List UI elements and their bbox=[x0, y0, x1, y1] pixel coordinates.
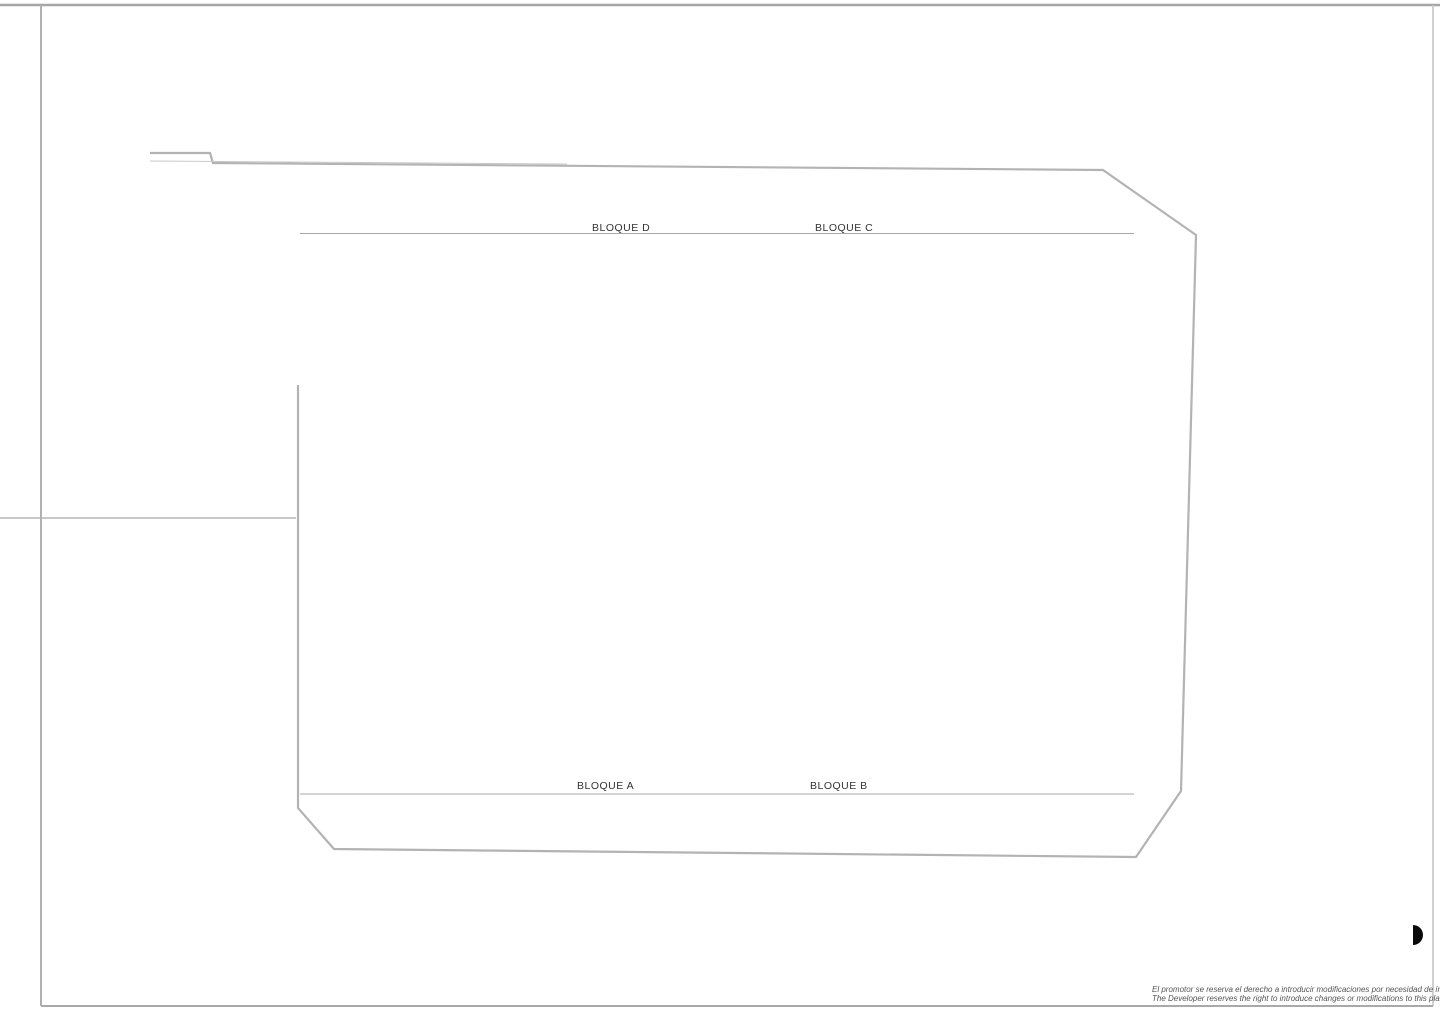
label-bloque-c: BLOQUE C bbox=[815, 222, 873, 234]
label-bloque-d: BLOQUE D bbox=[592, 222, 650, 234]
site-boundary-line bbox=[150, 153, 1196, 857]
label-bloque-a: BLOQUE A bbox=[577, 780, 634, 792]
sidewalk-lines bbox=[300, 234, 1134, 795]
disclaimer-text: El promotor se reserva el derecho a intr… bbox=[1152, 985, 1440, 1003]
label-bloque-b: BLOQUE B bbox=[810, 780, 868, 792]
binder-mark bbox=[1413, 925, 1423, 945]
block-labels: BLOQUE D BLOQUE C BLOQUE A BLOQUE B bbox=[577, 222, 873, 792]
site-plan-drawing: BLOQUE D BLOQUE C BLOQUE A BLOQUE B El p… bbox=[0, 0, 1440, 1024]
site-plan-sheet: BLOQUE D BLOQUE C BLOQUE A BLOQUE B El p… bbox=[0, 0, 1440, 1024]
disclaimer-line-en: The Developer reserves the right to intr… bbox=[1152, 994, 1440, 1003]
sheet-frame bbox=[0, 5, 1440, 1006]
site-boundary bbox=[150, 153, 1196, 857]
disclaimer-line-es: El promotor se reserva el derecho a intr… bbox=[1152, 985, 1440, 994]
